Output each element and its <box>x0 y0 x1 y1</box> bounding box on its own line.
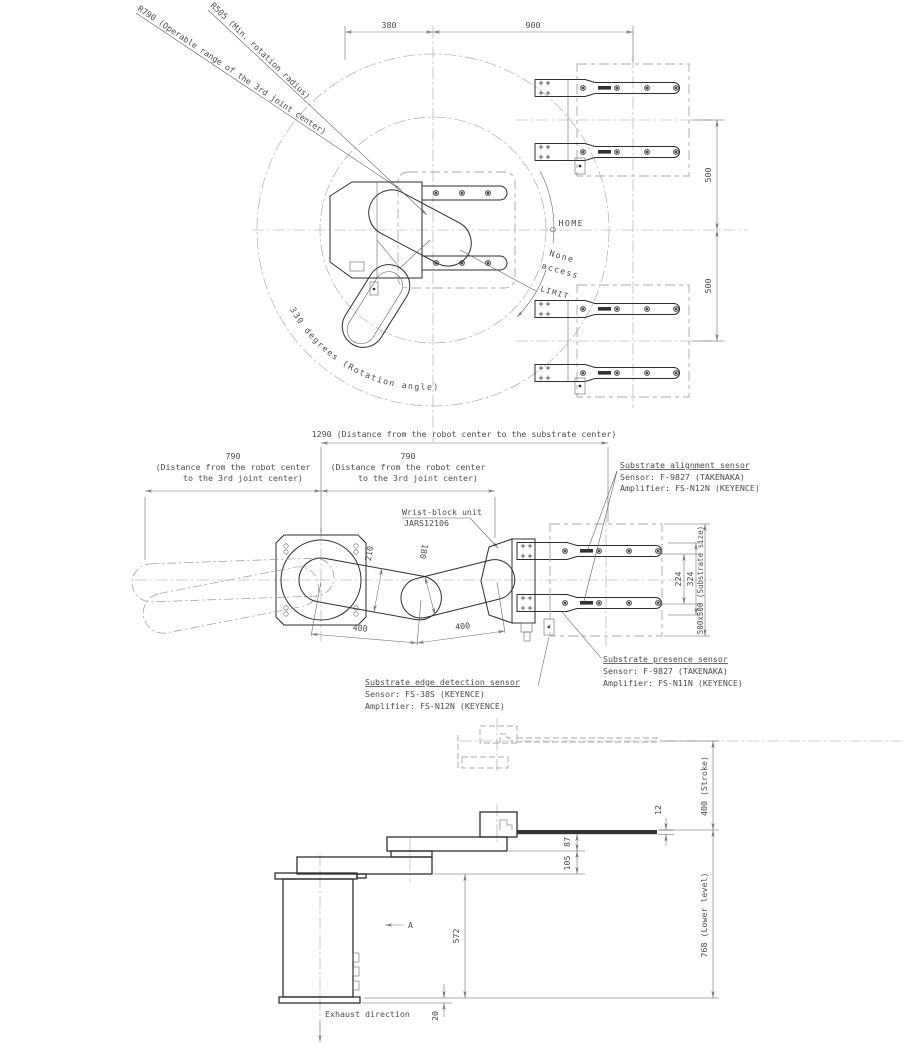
dim-210-180: 210 180 <box>363 543 435 615</box>
dim-790-value: 790 <box>226 451 241 461</box>
exhaust-annotation: Exhaust direction <box>320 1009 410 1042</box>
base-column <box>275 873 366 1003</box>
end-effector-upper <box>535 80 680 175</box>
dim-400-left: 400 <box>352 622 368 633</box>
dim-790-left: 790 (Distance from the robot center to t… <box>145 451 321 560</box>
wrist-block-model: JARS12106 <box>404 518 449 528</box>
dim-105-label: 105 <box>562 856 572 871</box>
dim-380-900: 380 900 <box>345 20 633 62</box>
presence-sensor-model: Sensor: F-9827 (TAKENAKA) <box>603 666 728 676</box>
exhaust-label: Exhaust direction <box>325 1009 410 1019</box>
dim-900: 900 <box>526 20 541 30</box>
limit-annotation: None access LIMIT <box>460 247 584 317</box>
top-view: R790 (Operable range of the 3rd joint ce… <box>136 0 748 442</box>
section-a-marker: A <box>385 920 413 930</box>
robot-body-top <box>330 172 515 355</box>
presence-sensor-callout: Substrate presence sensor Sensor: F-9827… <box>562 612 743 688</box>
none-access-line2: access <box>541 260 581 280</box>
dim-substrate-group: 224 324 500x500 (Substrate size) <box>660 524 710 636</box>
dim-790-note1: (Distance from the robot center <box>156 462 311 472</box>
dim-400-stroke-label: 400 (Stroke) <box>699 756 709 816</box>
rotation-angle-label: 330 degrees (Rotation angle) <box>288 305 440 392</box>
section-a-label: A <box>408 920 413 930</box>
fork-blade <box>517 830 657 834</box>
dim-180: 180 <box>418 543 430 560</box>
dim-790-value: 790 <box>401 451 416 461</box>
dim-790-note1: (Distance from the robot center <box>331 462 486 472</box>
dim-768-lower: 768 (Lower level) <box>699 830 713 998</box>
dim-768-label: 768 (Lower level) <box>699 873 709 958</box>
alignment-sensor-model: Sensor: F-9827 (TAKENAKA) <box>620 472 745 482</box>
dim-500-lower: 500 <box>703 279 713 294</box>
dim-500-pair: 500 500 <box>692 120 723 341</box>
dim-224: 224 <box>673 572 683 587</box>
edge-sensor-title: Substrate edge detection sensor <box>365 677 520 687</box>
limit-label: LIMIT <box>539 284 570 301</box>
robot-dimension-drawing: R790 (Operable range of the 3rd joint ce… <box>0 0 920 1050</box>
dim-400-stroke: 400 (Stroke) <box>699 741 713 830</box>
dim-572-label: 572 <box>451 929 461 944</box>
dim-790-note2: to the 3rd joint center) <box>358 473 478 483</box>
home-annotation: HOME <box>540 171 584 243</box>
wrist-block-title: Wrist-block unit <box>402 507 482 517</box>
end-effector-lower <box>535 301 680 395</box>
dim-substrate-size: 500x500 (Substrate size) <box>696 526 705 634</box>
radius-labels: R790 (Operable range of the 3rd joint ce… <box>136 0 427 215</box>
edge-sensor-amplifier: Amplifier: FS-N12N (KEYENCE) <box>365 701 505 711</box>
phantom-raised-arm <box>458 726 657 768</box>
arm-elevation <box>297 812 657 874</box>
dim-87-label: 87 <box>562 837 572 847</box>
dim-324: 324 <box>685 572 695 587</box>
engineering-drawing: R790 (Operable range of the 3rd joint ce… <box>0 0 920 1050</box>
wrist-block-label: Wrist-block unit JARS12106 <box>402 507 498 548</box>
end-effector-side <box>481 539 662 641</box>
alignment-sensor-amplifier: Amplifier: FS-N12N (KEYENCE) <box>620 483 760 493</box>
dim-12: 12 <box>653 805 674 846</box>
dim-400-right: 400 <box>455 620 471 632</box>
bottom-view: 400 (Stroke) 768 (Lower level) 12 87 105… <box>275 718 905 1042</box>
edge-sensor-callout: Substrate edge detection sensor Sensor: … <box>365 637 549 711</box>
middle-view: 1290 (Distance from the robot center to … <box>131 429 759 711</box>
dim-12-label: 12 <box>653 805 663 815</box>
edge-sensor-model: Sensor: FS-38S (KEYENCE) <box>365 689 485 699</box>
dim-572: 572 <box>451 874 465 998</box>
dim-20-label: 20 <box>430 1011 440 1021</box>
dim-105: 105 <box>562 851 577 874</box>
dim-210: 210 <box>363 545 375 562</box>
arm-links <box>295 554 519 623</box>
presence-sensor-amplifier: Amplifier: FS-N11N (KEYENCE) <box>603 678 743 688</box>
dim-20: 20 <box>430 984 444 1021</box>
dim-1290-label: 1290 (Distance from the robot center to … <box>312 429 617 439</box>
dim-790-note2: to the 3rd joint center) <box>183 473 303 483</box>
presence-sensor-title: Substrate presence sensor <box>603 654 728 664</box>
dim-87: 87 <box>562 834 577 851</box>
alignment-sensor-title: Substrate alignment sensor <box>620 460 750 470</box>
dim-380: 380 <box>382 20 397 30</box>
home-label: HOME <box>559 218 585 228</box>
dim-500-upper: 500 <box>703 168 713 183</box>
